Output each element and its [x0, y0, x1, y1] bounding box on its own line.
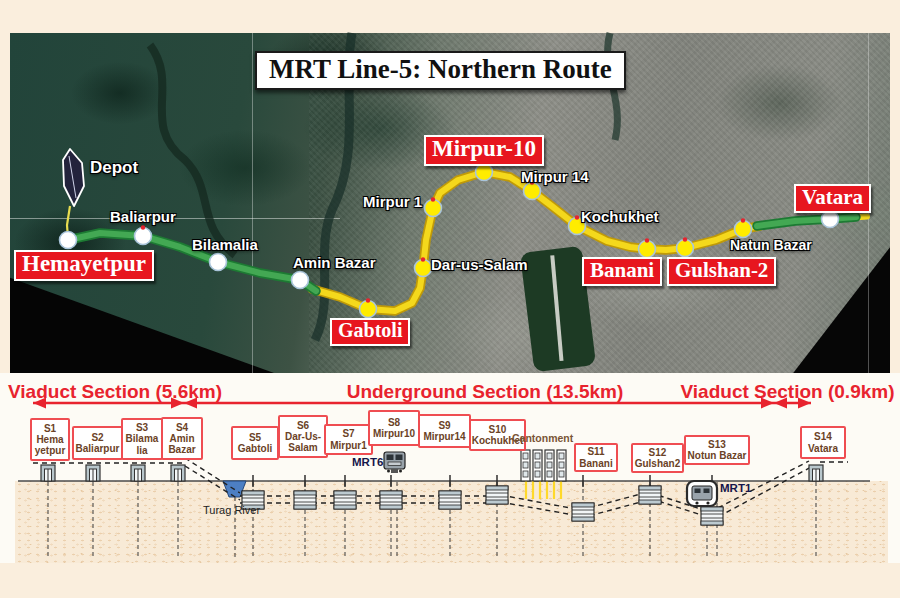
sbox-s8: S8Mirpur10 — [368, 410, 420, 446]
map-station-mirpur-1: Mirpur 1 — [363, 193, 422, 210]
ground-texture — [15, 481, 888, 563]
map-station-banani: Banani — [582, 257, 662, 286]
sbox-s7: S7Mirpur1 — [324, 424, 373, 455]
page-title: MRT Line-5: Northern Route — [255, 51, 626, 90]
map-seam — [252, 33, 253, 373]
sbox-s11: S11Banani — [574, 443, 618, 472]
section-viaduct-left: Viaduct Section (5.6km) — [0, 381, 230, 403]
map-station-amin-bazar: Amin Bazar — [293, 254, 376, 271]
sbox-s6: S6Dar-Us-Salam — [278, 415, 328, 458]
runway — [550, 255, 563, 361]
turag-river-label: Turag River — [203, 504, 260, 516]
sbox-s2: S2Baliarpur — [72, 426, 123, 460]
map-station-gulshan-2: Gulshan-2 — [667, 257, 776, 286]
map-station-bilamalia: Bilamalia — [192, 236, 258, 253]
map-station-vatara: Vatara — [794, 184, 871, 213]
map-station-baliarpur: Baliarpur — [110, 208, 176, 225]
section-viaduct-right: Viaduct Section (0.9km) — [675, 381, 900, 403]
section-underground: Underground Section (13.5km) — [345, 381, 625, 403]
map-station-hemayetpur: Hemayetpur — [14, 250, 154, 281]
sbox-s1: S1Hemayetpur — [30, 418, 70, 461]
map-station-mirpur-10: Mirpur-10 — [424, 135, 544, 166]
sbox-s9: S9Mirpur14 — [418, 414, 471, 448]
sbox-s14: S14Vatara — [800, 426, 846, 459]
sbox-s3: S3Bilamalia — [121, 418, 163, 460]
map-station-dar-us-salam: Dar-us-Salam — [431, 256, 528, 273]
mrt1-label: MRT1 — [720, 482, 751, 494]
mrt6-label: MRT6 — [352, 456, 383, 468]
sbox-s13: S13Notun Bazar — [684, 435, 750, 465]
sbox-s5: S5Gabtoli — [231, 426, 279, 460]
map-station-kochukhet: Kochukhet — [581, 208, 659, 225]
map-station-gabtoli: Gabtoli — [330, 318, 410, 346]
sbox-s4: S4AminBazar — [161, 417, 203, 460]
map-label-depot: Depot — [90, 158, 138, 178]
cantonment-label: Cantonment — [512, 432, 573, 444]
map-station-natun-bazar: Natun Bazar — [730, 237, 812, 253]
sbox-s12: S12Gulshan2 — [631, 443, 684, 473]
mrt-line5-infographic: MRT Line-5: Northern Route Depot Hemayet… — [0, 0, 900, 598]
map-station-mirpur-14: Mirpur 14 — [521, 168, 589, 185]
